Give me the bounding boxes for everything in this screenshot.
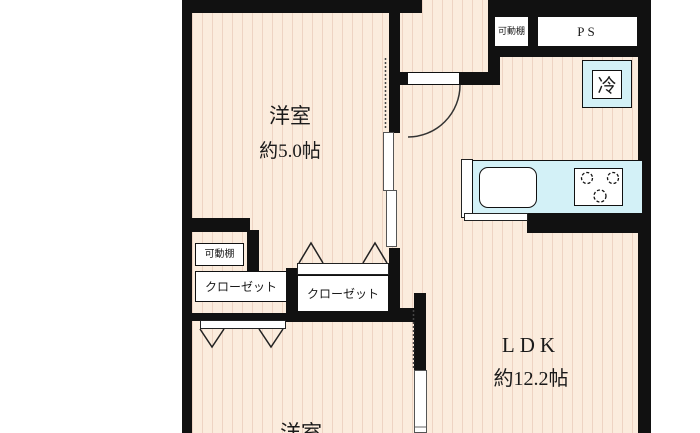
wall-top xyxy=(182,0,422,13)
ldk-size: 約12.2帖 xyxy=(451,362,611,391)
ldk-label: LDK 約12.2帖 xyxy=(451,333,611,391)
refrigerator-inner-box: 冷 xyxy=(592,70,622,99)
pipe-space-label: PS xyxy=(577,25,597,38)
movable-shelf-closet-box: 可動棚 xyxy=(195,243,244,266)
sliding-door-room1-panel-2 xyxy=(386,190,397,247)
room1-name: 洋室 xyxy=(210,100,370,130)
sliding-door-room2 xyxy=(414,370,427,433)
refrigerator-label: 冷 xyxy=(597,71,616,98)
kitchen-counter-front xyxy=(464,213,528,221)
closet-right-box: クローゼット xyxy=(297,275,389,312)
wall-hall-vertical xyxy=(414,293,426,370)
bifold-door-right-closet xyxy=(297,263,389,275)
room1-label: 洋室 約5.0帖 xyxy=(210,100,370,163)
room2-label: 洋室 xyxy=(231,417,371,433)
closet-left-label: クローゼット xyxy=(205,281,277,293)
bifold-door-left-closet xyxy=(200,320,286,329)
wall-door-right xyxy=(459,72,500,85)
refrigerator-space: 冷 xyxy=(582,60,632,108)
sliding-door-room1-panel-1 xyxy=(383,132,394,191)
closet-left-box: クローゼット xyxy=(195,271,287,302)
ldk-name: LDK xyxy=(451,333,611,358)
movable-shelf-top-box: 可動棚 xyxy=(494,16,529,47)
wall-closet-top xyxy=(182,218,250,232)
pipe-space-box: PS xyxy=(537,16,638,47)
wall-closet-divider-upper xyxy=(247,230,259,272)
closet-right-label: クローゼット xyxy=(307,288,379,300)
kitchen-stove xyxy=(574,168,623,206)
wall-left xyxy=(182,0,192,433)
kitchen-sink xyxy=(479,167,537,208)
wall-closet-right xyxy=(389,264,400,314)
wall-kitchen-bottom xyxy=(527,213,651,233)
room2-name: 洋室 xyxy=(231,417,371,433)
movable-shelf-closet-label: 可動棚 xyxy=(205,250,235,260)
swing-door-leaf xyxy=(407,72,460,85)
wall-door-jamb xyxy=(389,72,408,85)
floor-plan: 可動棚 PS 可動棚 クローゼット クローゼット 冷 xyxy=(0,0,700,433)
movable-shelf-top-label: 可動棚 xyxy=(498,27,525,36)
room1-size: 約5.0帖 xyxy=(210,136,370,163)
